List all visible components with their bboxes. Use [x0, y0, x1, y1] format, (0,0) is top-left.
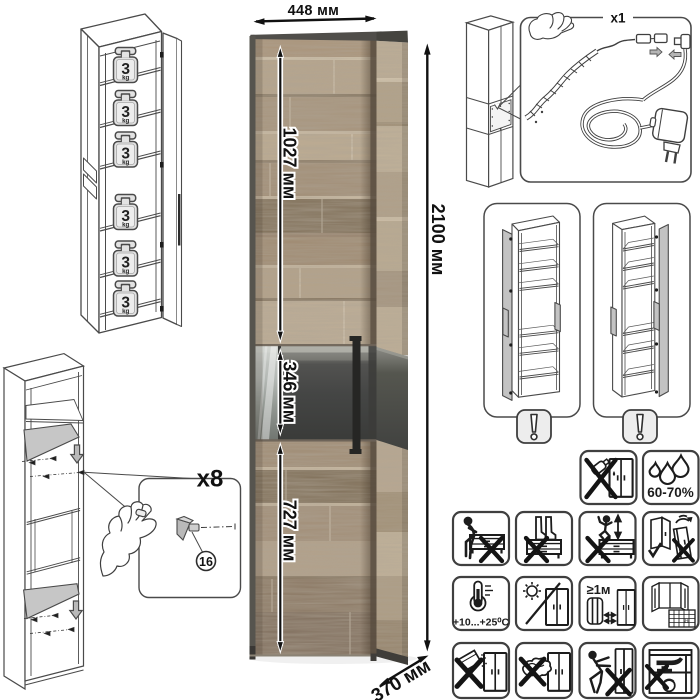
svg-text:727 мм: 727 мм: [280, 500, 300, 562]
svg-text:≥1м: ≥1м: [587, 582, 611, 597]
svg-text:21: 21: [684, 618, 690, 623]
svg-text:+10...+25⁰C: +10...+25⁰C: [453, 617, 510, 629]
svg-text:60-70%: 60-70%: [647, 485, 694, 500]
svg-text:16: 16: [199, 555, 213, 569]
svg-text:448 мм: 448 мм: [288, 3, 339, 19]
svg-text:2100 мм: 2100 мм: [428, 204, 448, 276]
svg-text:1027 мм: 1027 мм: [280, 127, 300, 199]
svg-text:346 мм: 346 мм: [280, 361, 300, 423]
svg-text:x1: x1: [610, 11, 626, 26]
svg-text:x8: x8: [197, 466, 224, 493]
